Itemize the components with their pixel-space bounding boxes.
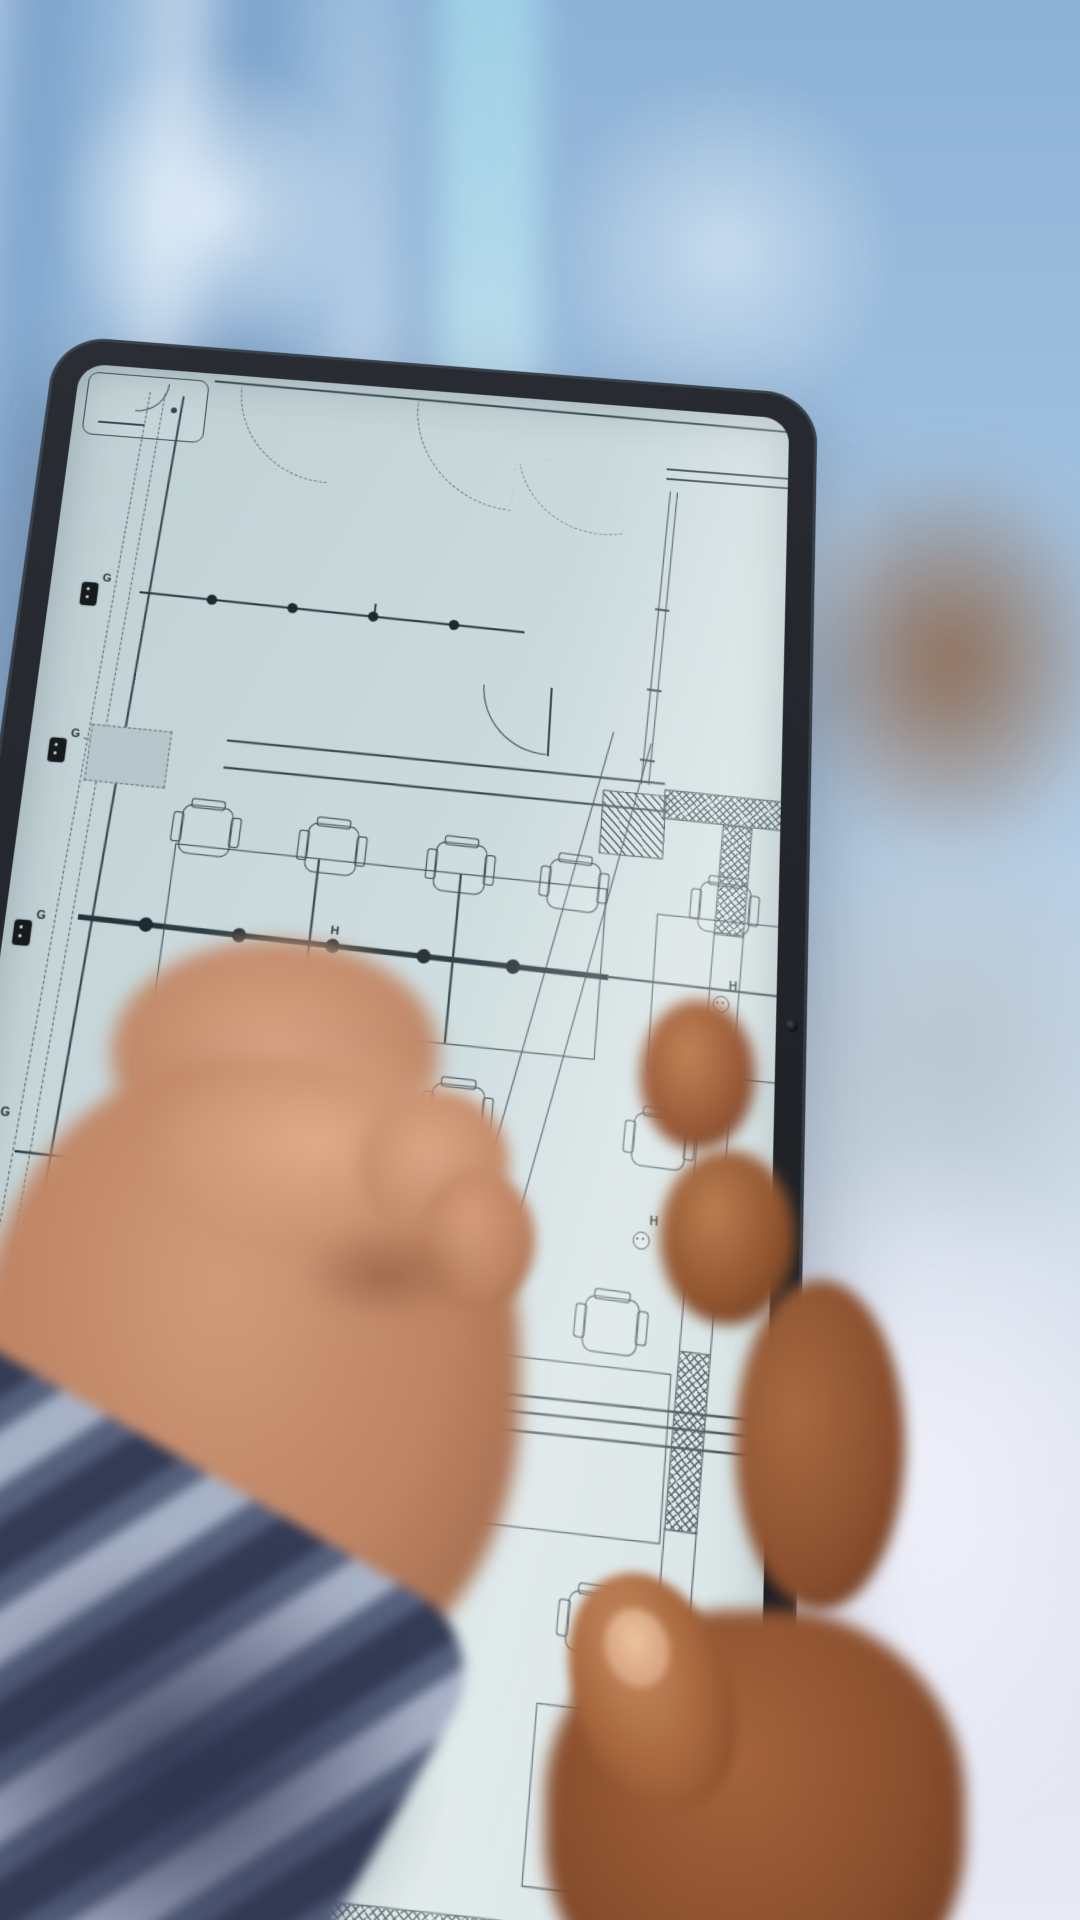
- right-hand-knuckles: [735, 1280, 905, 1610]
- right-hand-fingertip: [660, 1150, 795, 1325]
- photo-scene: GGGGHHHHH: [0, 0, 1080, 1920]
- sleeve-shadow: [0, 1560, 420, 1920]
- front-camera-icon: [786, 1019, 798, 1032]
- right-hand-fingertip: [640, 1000, 755, 1150]
- finger-crease-shadow: [300, 1230, 470, 1320]
